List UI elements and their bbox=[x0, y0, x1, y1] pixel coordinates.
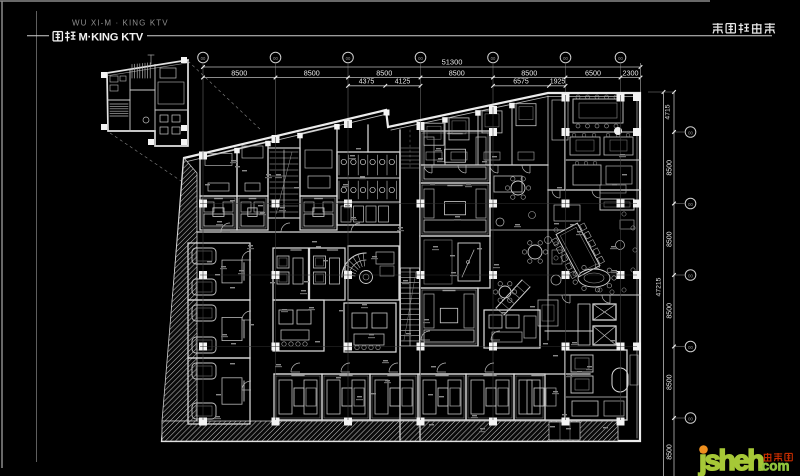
svg-text:M·KING KTV: M·KING KTV bbox=[79, 32, 144, 44]
svg-text:00: 00 bbox=[688, 130, 693, 135]
svg-text:00: 00 bbox=[688, 345, 693, 350]
svg-text:8500: 8500 bbox=[304, 68, 320, 77]
svg-text:8500: 8500 bbox=[667, 303, 674, 319]
svg-text:00: 00 bbox=[201, 56, 206, 61]
svg-text:8500: 8500 bbox=[667, 231, 674, 247]
svg-text:00: 00 bbox=[491, 56, 496, 61]
svg-text:47215: 47215 bbox=[656, 277, 663, 296]
svg-text:8500: 8500 bbox=[667, 444, 674, 460]
svg-text:00: 00 bbox=[346, 56, 351, 61]
svg-text:WU XI-M · KING KTV: WU XI-M · KING KTV bbox=[72, 19, 169, 28]
svg-text:1925: 1925 bbox=[550, 79, 566, 86]
svg-text:8500: 8500 bbox=[667, 160, 674, 176]
svg-text:00: 00 bbox=[418, 56, 423, 61]
svg-text:00: 00 bbox=[273, 56, 278, 61]
svg-text:00: 00 bbox=[688, 273, 693, 278]
svg-text:8500: 8500 bbox=[231, 68, 247, 77]
svg-text:00: 00 bbox=[618, 56, 623, 61]
svg-text:4375: 4375 bbox=[359, 79, 375, 86]
svg-text:2300: 2300 bbox=[623, 68, 639, 77]
svg-text:8500: 8500 bbox=[667, 374, 674, 390]
svg-text:8500: 8500 bbox=[521, 68, 537, 77]
svg-text:8500: 8500 bbox=[376, 68, 392, 77]
svg-text:4715: 4715 bbox=[665, 104, 672, 119]
svg-text:00: 00 bbox=[688, 416, 693, 421]
svg-text:00: 00 bbox=[563, 56, 568, 61]
svg-text:8500: 8500 bbox=[449, 68, 465, 77]
svg-text:4125: 4125 bbox=[395, 79, 411, 86]
svg-text:6575: 6575 bbox=[513, 79, 529, 86]
svg-text:6500: 6500 bbox=[585, 68, 601, 77]
svg-text:51300: 51300 bbox=[442, 58, 463, 67]
svg-text:00: 00 bbox=[688, 202, 693, 207]
